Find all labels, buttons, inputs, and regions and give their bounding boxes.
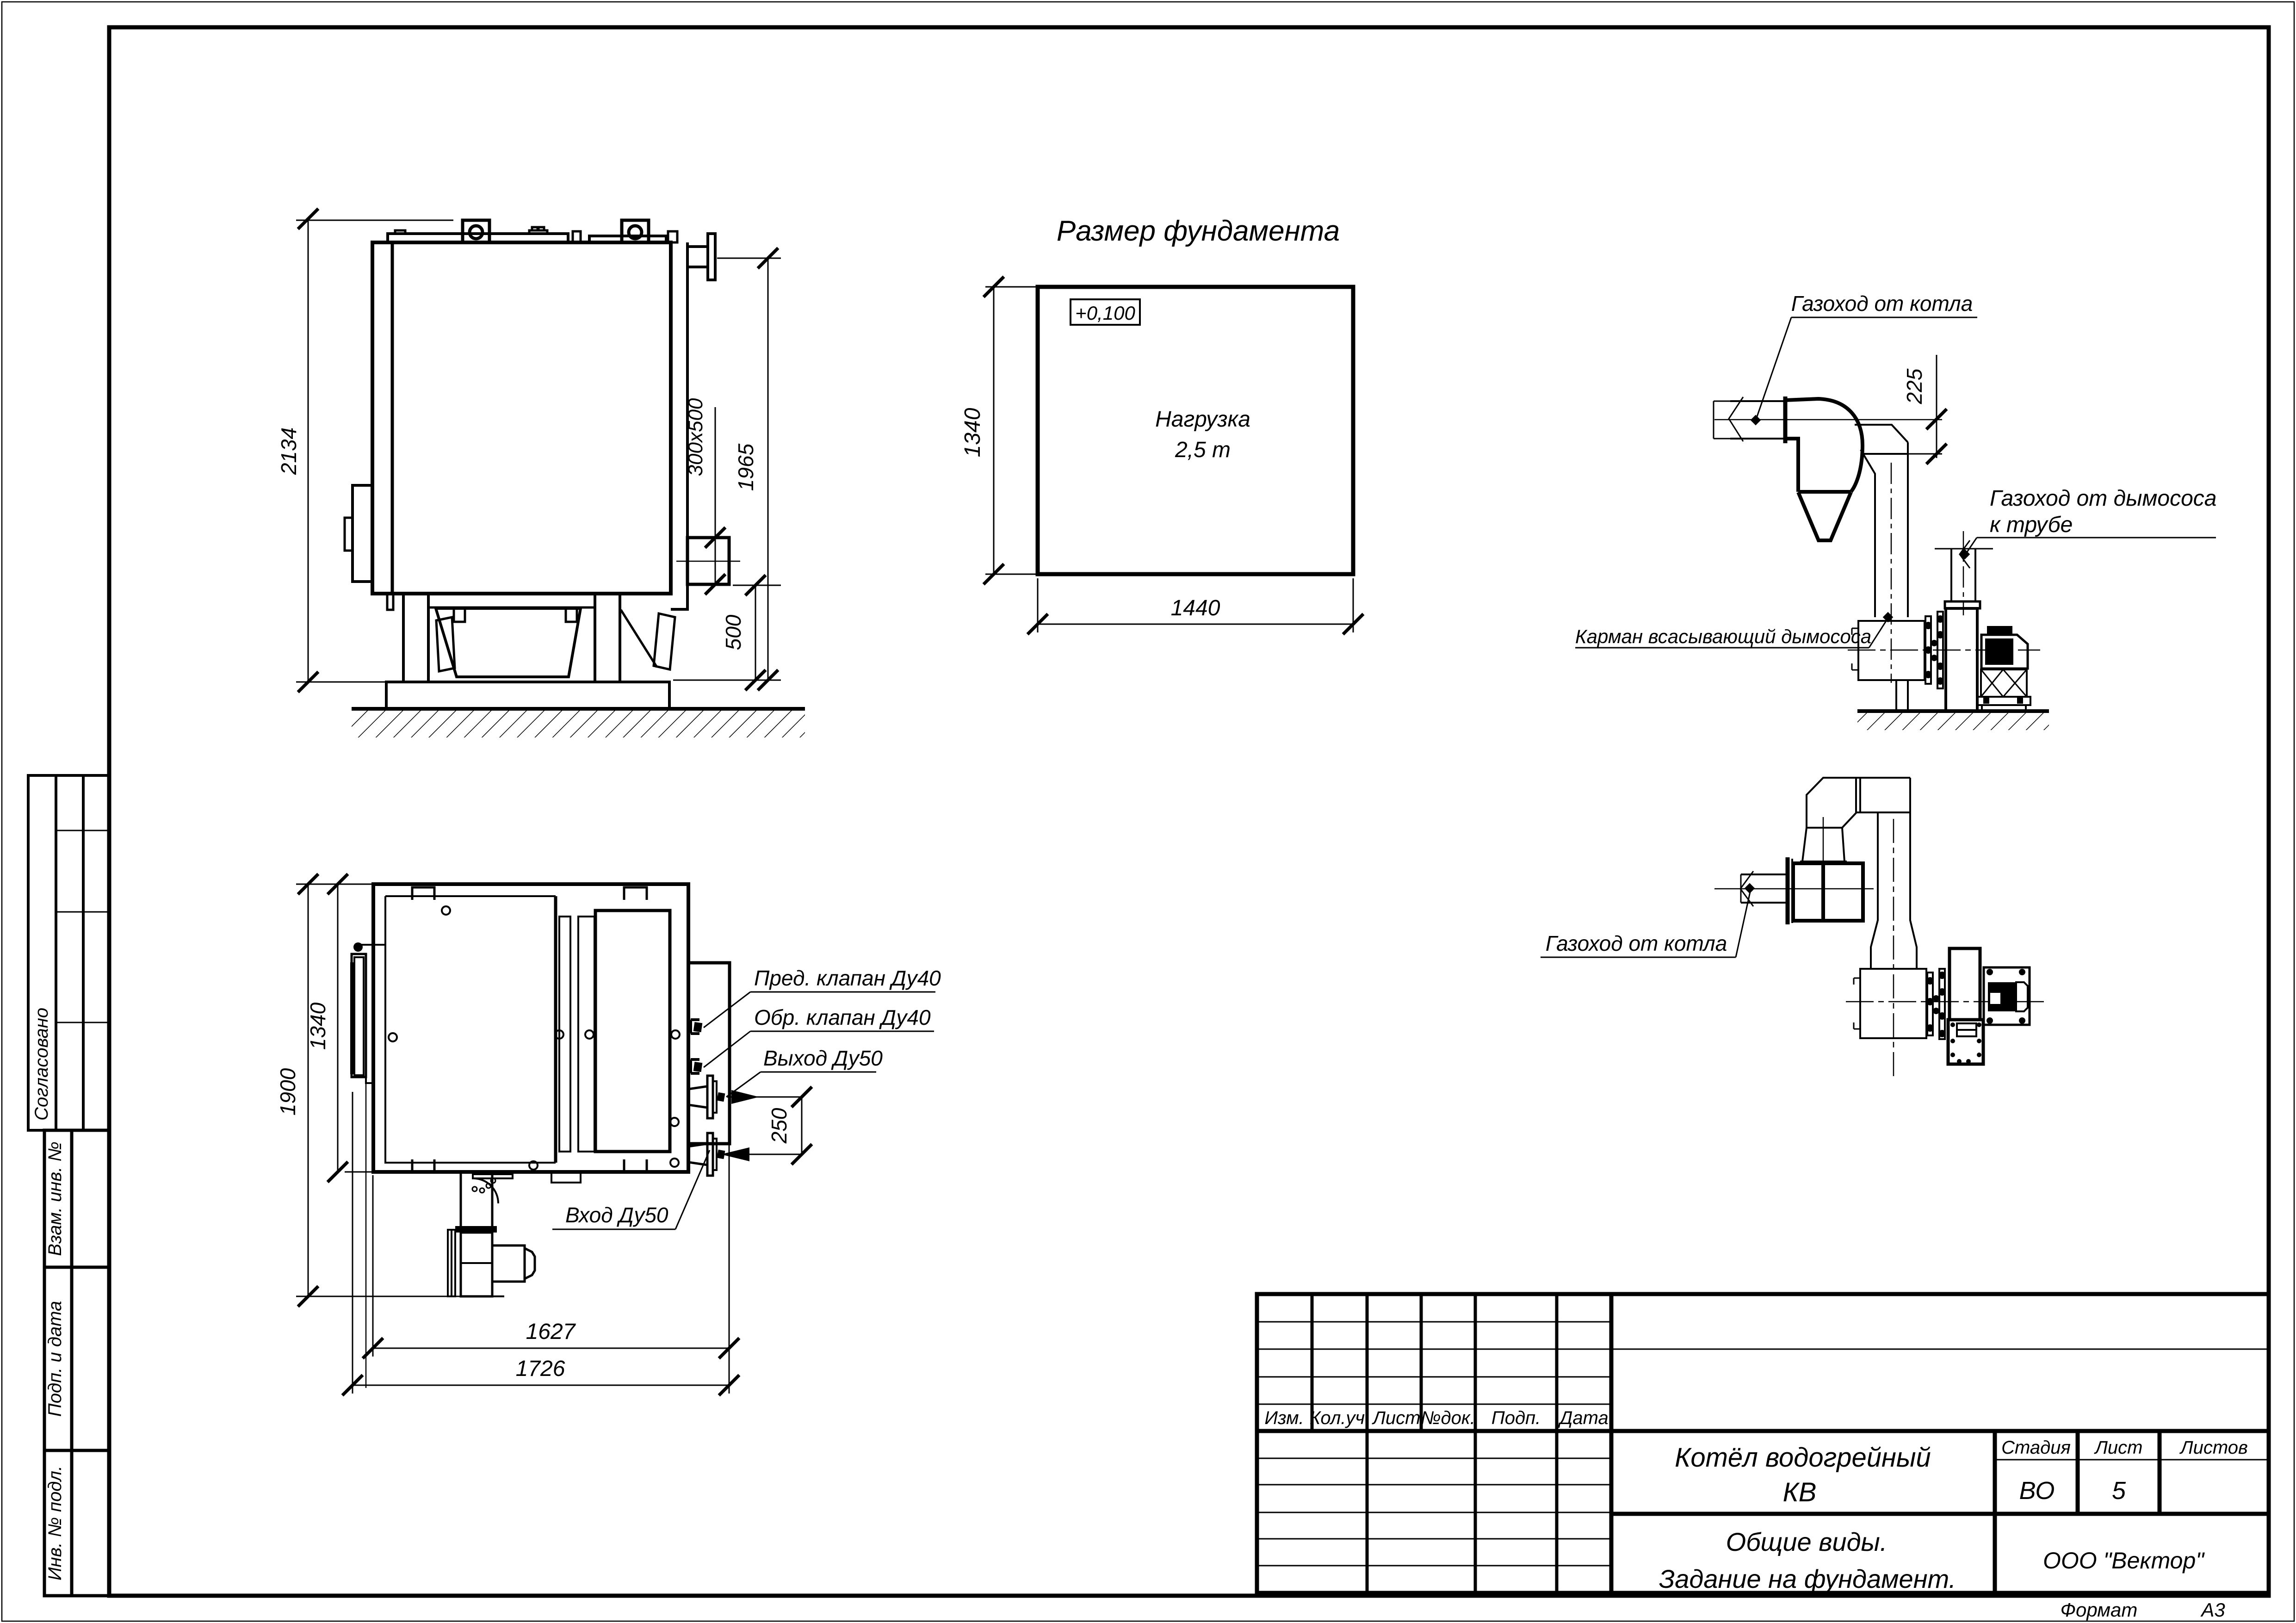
svg-text:Подп.: Подп.: [1491, 1408, 1541, 1428]
svg-text:1900: 1900: [276, 1068, 300, 1115]
svg-text:Кол.уч.: Кол.уч.: [1310, 1408, 1370, 1428]
svg-text:+0,100: +0,100: [1075, 302, 1135, 324]
svg-text:Формат: Формат: [2061, 1599, 2138, 1621]
svg-text:Листов: Листов: [2179, 1437, 2248, 1458]
svg-text:1627: 1627: [526, 1319, 576, 1344]
svg-text:300х500: 300х500: [684, 398, 707, 476]
svg-text:5: 5: [2112, 1477, 2126, 1505]
svg-text:Котёл водогрейный: Котёл водогрейный: [1675, 1443, 1931, 1473]
svg-text:А3: А3: [2200, 1599, 2225, 1621]
svg-text:1965: 1965: [734, 443, 758, 491]
svg-text:250: 250: [767, 1108, 791, 1144]
svg-text:2134: 2134: [277, 427, 301, 475]
svg-text:Стадия: Стадия: [2001, 1437, 2071, 1458]
svg-text:КВ: КВ: [1783, 1477, 1817, 1507]
svg-text:500: 500: [721, 614, 745, 650]
svg-text:№док.: №док.: [1421, 1408, 1475, 1428]
svg-text:Выход Ду50: Выход Ду50: [763, 1046, 883, 1070]
svg-text:Пред. клапан Ду40: Пред. клапан Ду40: [754, 966, 941, 990]
svg-text:Лист: Лист: [2094, 1437, 2143, 1458]
svg-text:Обр. клапан Ду40: Обр. клапан Ду40: [754, 1005, 931, 1029]
svg-text:Общие виды.: Общие виды.: [1726, 1527, 1888, 1556]
svg-text:Изм.: Изм.: [1264, 1408, 1304, 1428]
svg-text:1340: 1340: [306, 1002, 330, 1050]
svg-text:Подп. и дата: Подп. и дата: [45, 1301, 65, 1417]
svg-text:ВО: ВО: [2019, 1477, 2055, 1505]
svg-text:Вход Ду50: Вход Ду50: [565, 1203, 668, 1227]
svg-text:Газоход от котла: Газоход от котла: [1546, 931, 1727, 955]
svg-text:1340: 1340: [960, 408, 985, 457]
svg-text:Нагрузка: Нагрузка: [1155, 407, 1250, 432]
svg-text:Газоход от котла: Газоход от котла: [1791, 291, 1973, 316]
svg-text:Задание на фундамент.: Задание на фундамент.: [1659, 1564, 1956, 1593]
svg-text:225: 225: [1902, 368, 1926, 404]
svg-text:1440: 1440: [1171, 596, 1220, 620]
svg-text:Размер фундамента: Размер фундамента: [1057, 215, 1340, 247]
svg-text:1726: 1726: [516, 1357, 565, 1381]
svg-text:Согласовано: Согласовано: [31, 1008, 52, 1121]
svg-text:Карман всасывающий дымососа: Карман всасывающий дымососа: [1575, 626, 1871, 647]
svg-text:Лист: Лист: [1372, 1408, 1421, 1428]
svg-text:ООО "Вектор": ООО "Вектор": [2043, 1548, 2205, 1573]
svg-text:Взам. инв. №: Взам. инв. №: [45, 1141, 65, 1256]
svg-text:Инв. № подл.: Инв. № подл.: [45, 1466, 65, 1580]
svg-text:к трубе: к трубе: [1990, 513, 2073, 537]
svg-text:2,5 т: 2,5 т: [1175, 438, 1231, 462]
svg-text:Газоход от дымососа: Газоход от дымососа: [1990, 486, 2216, 511]
svg-text:Дата: Дата: [1558, 1408, 1609, 1428]
